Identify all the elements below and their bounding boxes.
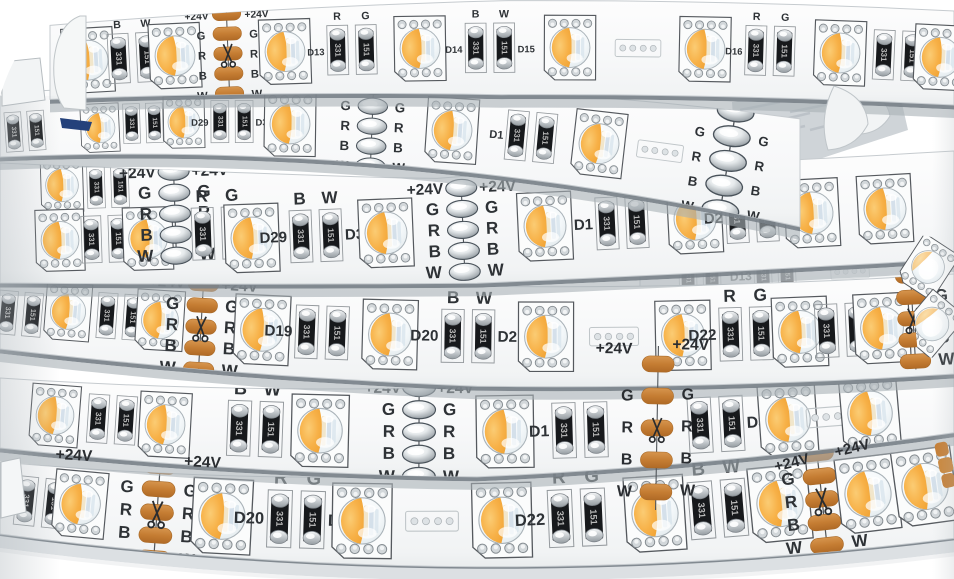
svg-text:G: G	[425, 200, 439, 220]
svg-text:G: G	[225, 186, 239, 205]
svg-text:D20: D20	[234, 509, 265, 528]
svg-text:D1: D1	[573, 216, 593, 234]
svg-text:W: W	[617, 483, 633, 500]
svg-text:R: R	[333, 11, 341, 23]
svg-text:B: B	[621, 451, 633, 468]
svg-text:B: B	[486, 239, 499, 258]
svg-text:B: B	[680, 450, 692, 467]
svg-text:+24V: +24V	[184, 453, 222, 472]
svg-text:B: B	[199, 70, 208, 82]
svg-text:W: W	[851, 530, 870, 551]
svg-text:R: R	[139, 204, 152, 223]
svg-text:R: R	[198, 50, 207, 62]
svg-text:R: R	[340, 118, 351, 133]
svg-text:R: R	[427, 221, 440, 240]
svg-text:G: G	[382, 400, 395, 419]
svg-text:B: B	[443, 444, 455, 463]
svg-text:B: B	[393, 140, 403, 155]
svg-text:D1: D1	[529, 423, 550, 441]
svg-text:R: R	[621, 419, 633, 436]
svg-text:D20: D20	[410, 327, 438, 344]
svg-text:W: W	[137, 246, 155, 266]
svg-text:B: B	[472, 8, 480, 20]
svg-text:+24V: +24V	[55, 446, 93, 465]
svg-text:R: R	[723, 285, 737, 305]
svg-text:G: G	[781, 12, 790, 24]
svg-text:D19: D19	[264, 322, 293, 340]
svg-text:+24V: +24V	[672, 336, 710, 354]
svg-text:W: W	[499, 8, 510, 20]
svg-text:R: R	[250, 48, 259, 60]
svg-text:G: G	[120, 477, 135, 497]
svg-text:B: B	[293, 189, 306, 208]
svg-text:G: G	[621, 387, 634, 404]
svg-text:D29: D29	[191, 118, 208, 129]
svg-text:B: B	[786, 515, 800, 535]
svg-text:B: B	[118, 523, 132, 543]
svg-text:G: G	[485, 197, 499, 217]
svg-text:G: G	[753, 285, 767, 305]
svg-text:D15: D15	[518, 43, 535, 54]
svg-text:B: B	[428, 242, 441, 261]
svg-text:+24V: +24V	[406, 181, 444, 200]
svg-text:G: G	[138, 183, 152, 202]
svg-text:R: R	[784, 492, 798, 512]
svg-text:D14: D14	[445, 44, 463, 55]
svg-text:D29: D29	[259, 229, 287, 247]
svg-text:R: R	[383, 422, 395, 441]
svg-text:R: R	[195, 187, 208, 206]
svg-text:B: B	[164, 336, 177, 356]
svg-text:G: G	[681, 386, 694, 403]
svg-text:G: G	[196, 30, 205, 42]
svg-text:R: R	[753, 11, 761, 23]
svg-text:R: R	[165, 315, 178, 335]
svg-text:D1: D1	[489, 129, 504, 142]
svg-text:D16: D16	[725, 45, 743, 56]
svg-text:R: R	[443, 422, 455, 441]
svg-text:W: W	[680, 482, 696, 499]
svg-text:W: W	[487, 260, 505, 280]
svg-text:+24V: +24V	[596, 340, 634, 358]
svg-text:G: G	[443, 400, 456, 419]
svg-text:W: W	[321, 188, 339, 208]
svg-text:G: G	[249, 28, 258, 40]
svg-text:W: W	[425, 263, 443, 283]
svg-text:R: R	[486, 218, 499, 237]
svg-text:B: B	[113, 19, 122, 31]
svg-text:R: R	[394, 120, 405, 135]
svg-text:D13: D13	[307, 46, 324, 57]
svg-text:R: R	[119, 500, 133, 520]
svg-text:B: B	[140, 225, 153, 244]
svg-text:B: B	[251, 68, 260, 80]
svg-text:R: R	[681, 418, 693, 435]
svg-text:G: G	[361, 10, 370, 22]
svg-text:B: B	[339, 138, 349, 153]
svg-text:D22: D22	[515, 511, 546, 530]
svg-text:B: B	[383, 444, 395, 463]
